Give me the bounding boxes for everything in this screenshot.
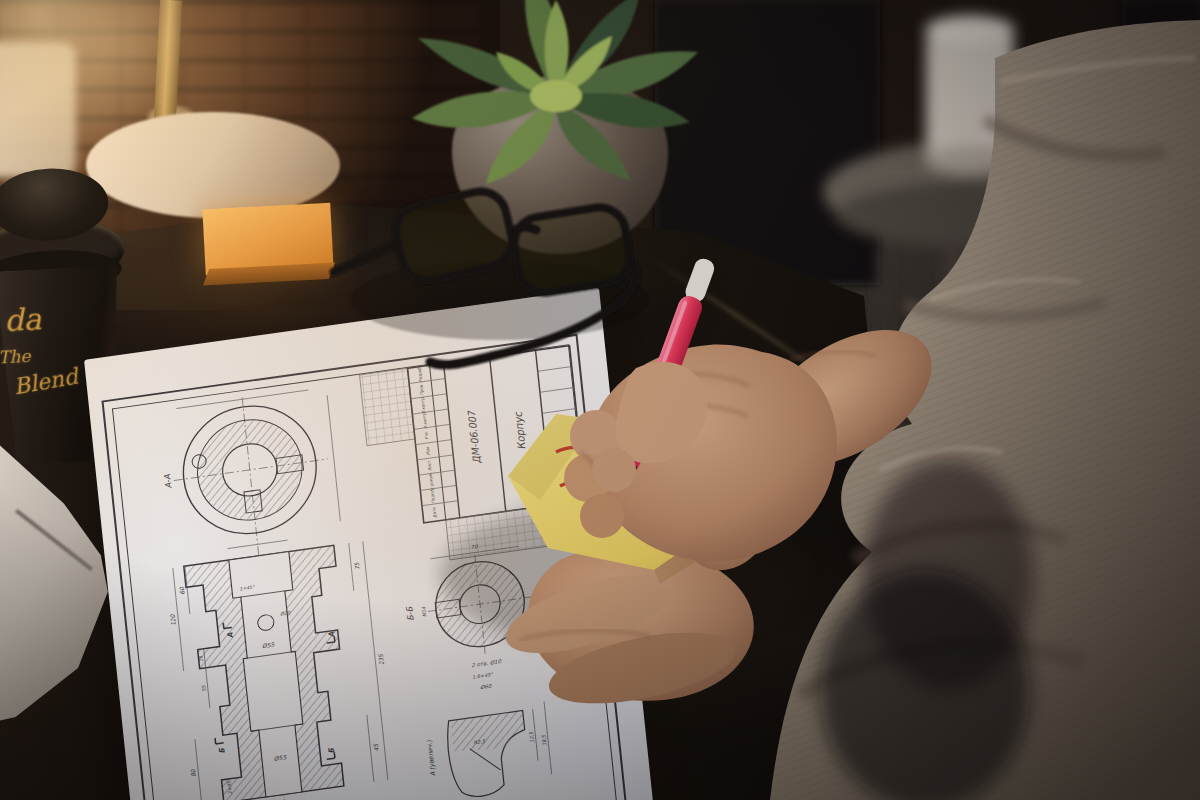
photo-scene: da The Blend [0, 0, 1200, 800]
sleeve-shadow-lower [820, 570, 1030, 800]
foreground-person [0, 0, 1200, 800]
knuckle [580, 494, 624, 538]
right-index-finger [592, 448, 636, 492]
